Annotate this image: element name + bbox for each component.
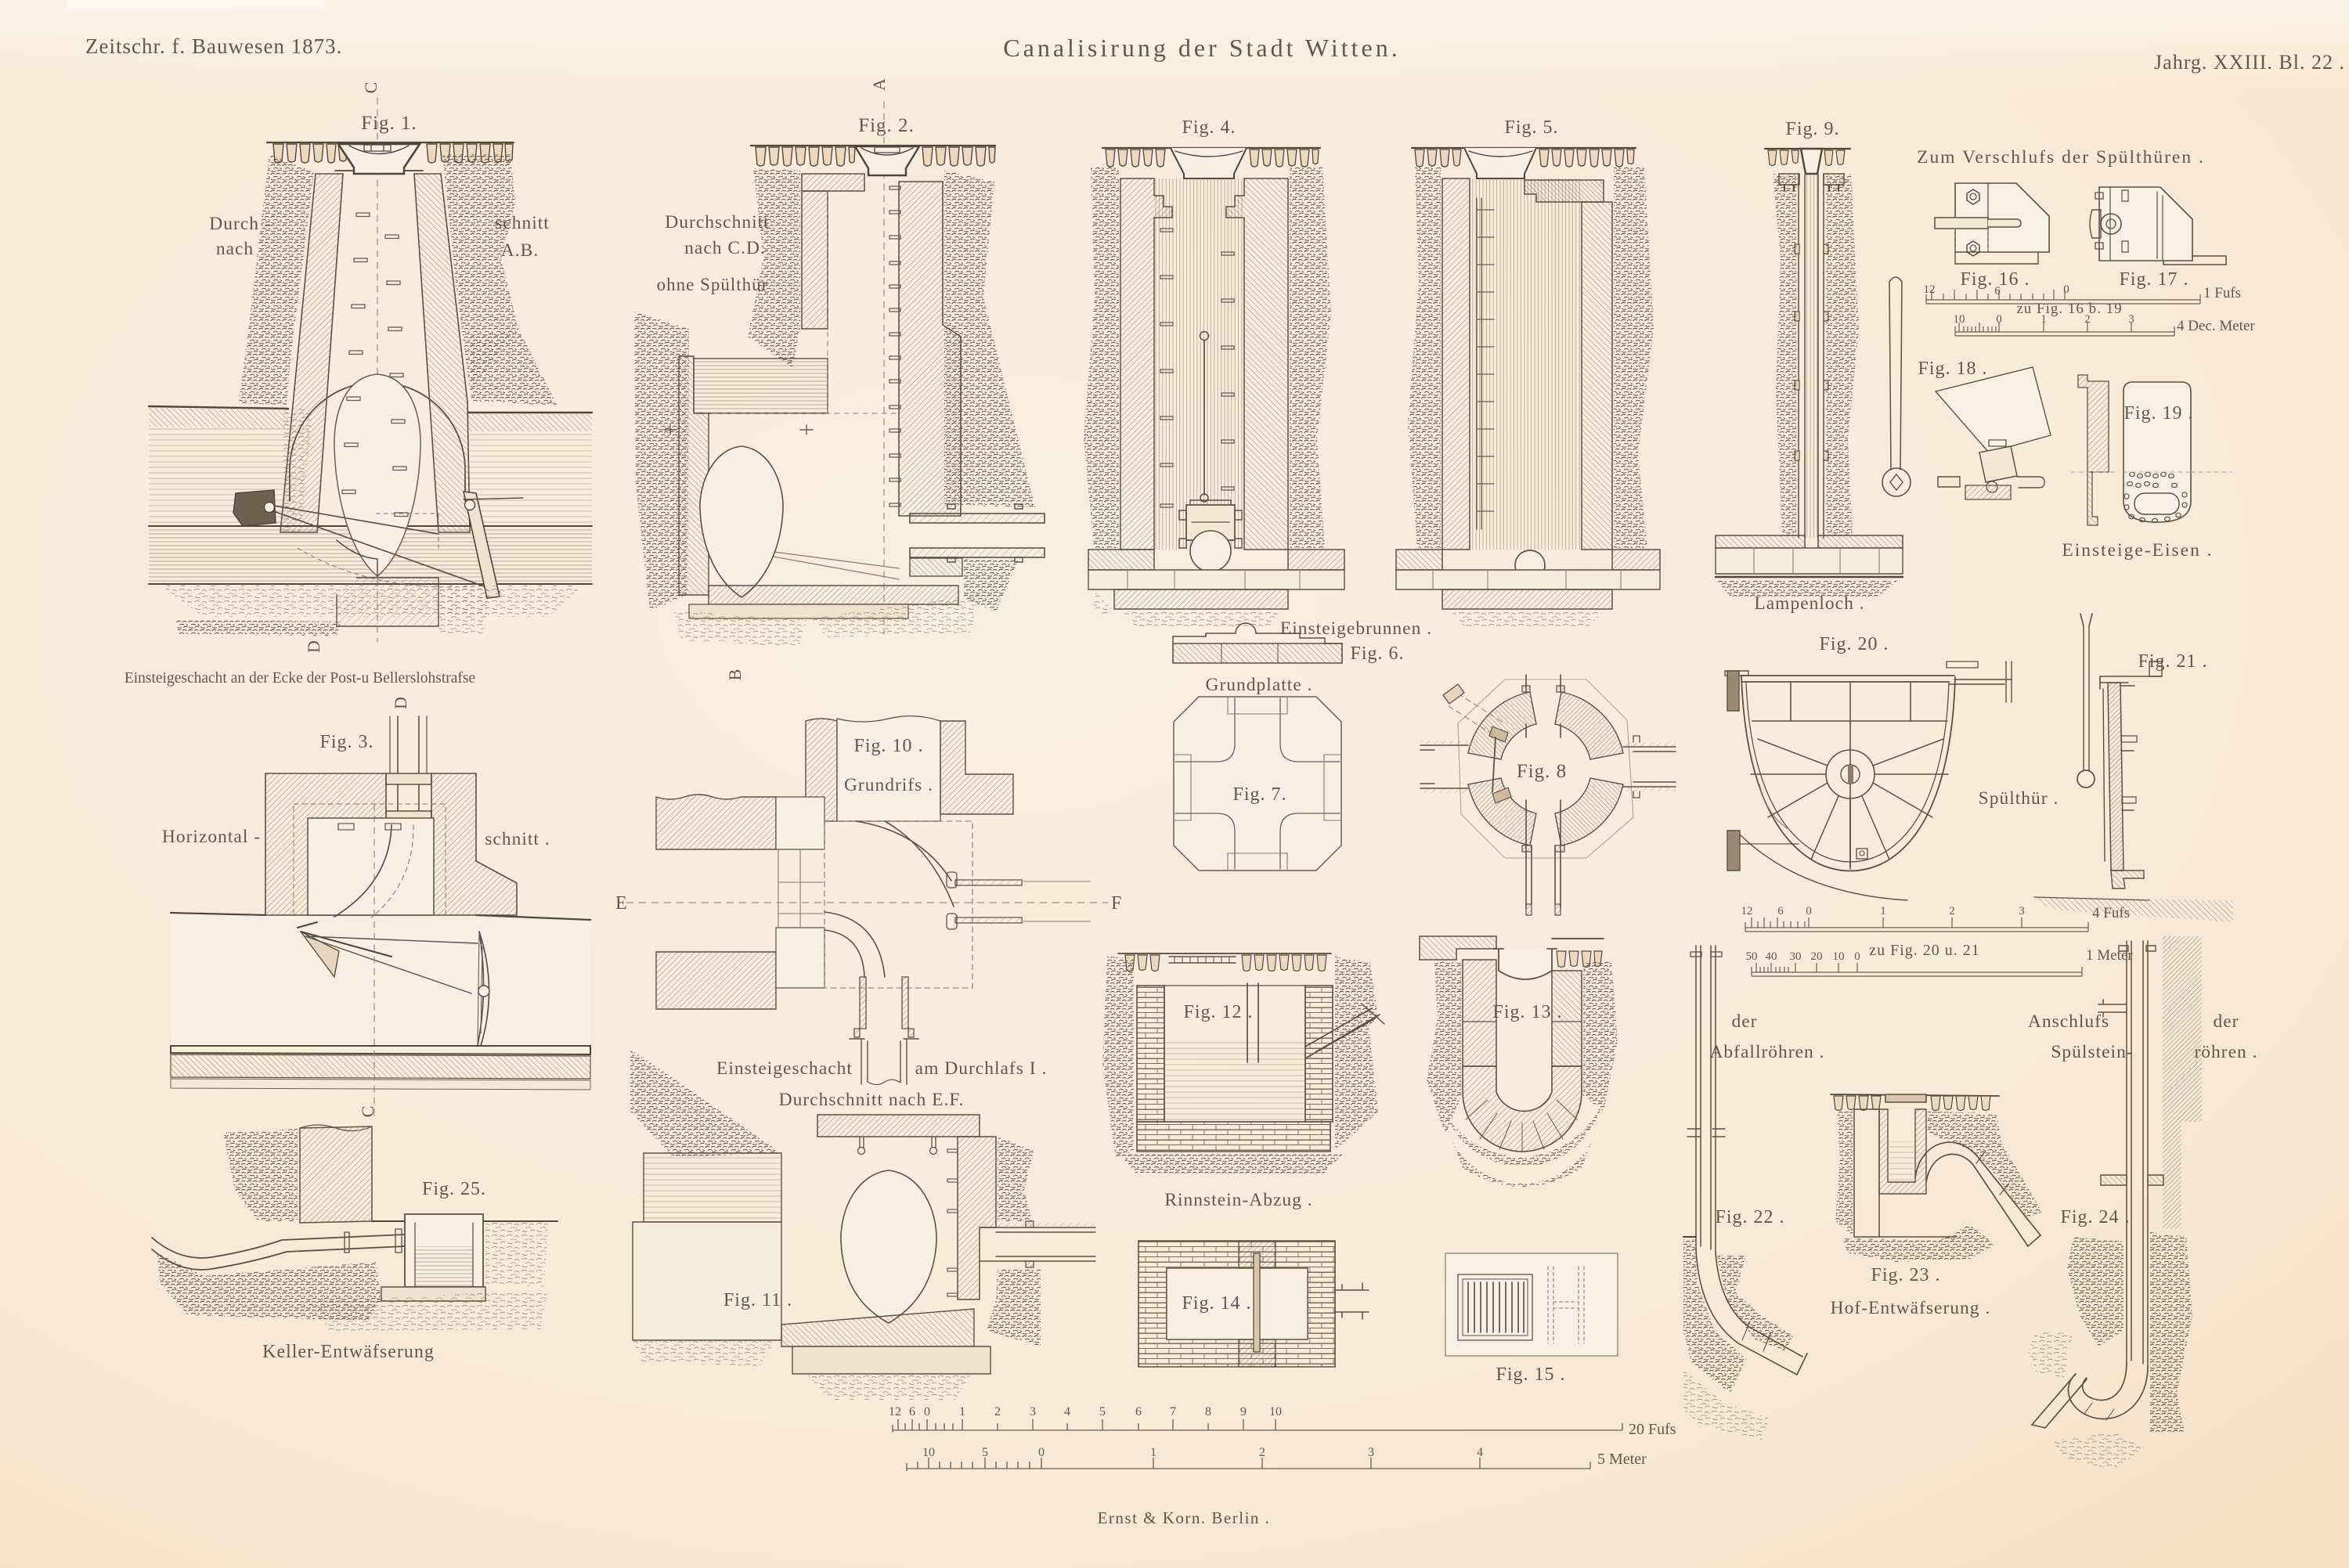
svg-text:3: 3 [1030,1405,1036,1418]
svg-text:Fig. 13 .: Fig. 13 . [1492,1002,1562,1022]
svg-text:A: A [869,78,889,91]
svg-text:2: 2 [994,1405,1001,1418]
svg-text:1 Meter: 1 Meter [2086,947,2133,964]
svg-text:2: 2 [1259,1446,1265,1459]
svg-text:0: 0 [1854,950,1860,963]
svg-text:40: 40 [1766,950,1777,963]
svg-text:F: F [1111,893,1121,914]
svg-text:12: 12 [889,1405,901,1418]
svg-text:4 Fufs: 4 Fufs [2092,905,2130,921]
svg-text:nach C.D.: nach C.D. [684,238,766,258]
svg-text:Fig. 17 .: Fig. 17 . [2119,269,2188,290]
svg-text:Fig. 22 .: Fig. 22 . [1715,1207,1784,1227]
svg-text:Spülstein-: Spülstein- [2051,1042,2133,1062]
svg-text:10: 10 [1833,950,1845,963]
svg-text:30: 30 [1790,950,1802,963]
svg-text:Rinnstein-Abzug .: Rinnstein-Abzug . [1164,1190,1312,1210]
svg-text:Fig. 18 .: Fig. 18 . [1918,359,1987,379]
svg-text:Durchschnitt nach E.F.: Durchschnitt nach E.F. [779,1090,965,1110]
svg-text:Anschlufs: Anschlufs [2028,1011,2109,1032]
svg-text:Fig. 8: Fig. 8 [1517,761,1567,782]
svg-text:1 Fufs: 1 Fufs [2203,285,2241,301]
svg-text:4: 4 [1477,1446,1483,1459]
svg-text:B: B [725,669,745,681]
svg-text:schnitt .: schnitt . [485,829,550,849]
svg-text:0: 0 [1806,905,1812,917]
svg-text:10: 10 [922,1446,935,1459]
svg-text:Ernst & Korn. Berlin .: Ernst & Korn. Berlin . [1098,1509,1271,1527]
svg-text:Fig. 2.: Fig. 2. [858,115,915,136]
svg-text:Horizontal -: Horizontal - [162,827,261,847]
svg-text:4 Dec. Meter: 4 Dec. Meter [2177,318,2255,334]
svg-text:2: 2 [1949,905,1955,917]
svg-text:zu Fig. 16 b. 19: zu Fig. 16 b. 19 [2016,301,2122,317]
svg-text:am Durchlafs I .: am Durchlafs I . [915,1058,1048,1079]
svg-text:Grundplatte .: Grundplatte . [1206,675,1313,695]
svg-text:6: 6 [1135,1405,1142,1418]
svg-text:Zum Verschlufs der Spülthüren: Zum Verschlufs der Spülthüren . [1917,147,2205,168]
svg-text:der: der [1731,1011,1757,1032]
svg-text:Fig. 20 .: Fig. 20 . [1819,634,1889,654]
svg-text:10: 10 [1954,313,1965,326]
svg-text:Spülthür .: Spülthür . [1979,788,2059,809]
svg-text:ohne Spülthür: ohne Spülthür [657,275,769,294]
svg-text:5 Meter: 5 Meter [1597,1451,1647,1468]
svg-text:5: 5 [982,1446,988,1459]
svg-text:1: 1 [959,1405,965,1418]
svg-text:0: 0 [2063,283,2069,296]
svg-text:8: 8 [1205,1405,1211,1418]
svg-text:50: 50 [1746,950,1758,963]
svg-text:Einsteigeschacht an der Ecke d: Einsteigeschacht an der Ecke der Post-u … [124,670,475,687]
svg-text:20: 20 [1811,950,1823,963]
svg-text:zu Fig. 20 u. 21: zu Fig. 20 u. 21 [1869,942,1980,959]
svg-text:Einsteigebrunnen .: Einsteigebrunnen . [1280,618,1432,639]
svg-text:Einsteigeschacht: Einsteigeschacht [716,1058,853,1079]
svg-text:0: 0 [1038,1446,1045,1459]
svg-text:Fig. 12 .: Fig. 12 . [1183,1002,1253,1022]
svg-text:0: 0 [924,1405,930,1418]
svg-text:4: 4 [1064,1405,1070,1418]
svg-text:Fig. 21 .: Fig. 21 . [2138,651,2207,672]
svg-text:nach: nach [216,239,254,259]
svg-text:C: C [361,82,381,94]
svg-text:3: 3 [1368,1446,1374,1459]
svg-text:Hof-Entwäfserung .: Hof-Entwäfserung . [1831,1298,1991,1318]
svg-text:1: 1 [1880,905,1886,917]
svg-text:D: D [304,640,323,653]
svg-text:Fig. 14 .: Fig. 14 . [1182,1293,1251,1314]
svg-text:röhren .: röhren . [2194,1042,2257,1062]
svg-text:Fig. 25.: Fig. 25. [422,1179,486,1199]
svg-text:Fig. 7.: Fig. 7. [1232,784,1286,805]
svg-text:6: 6 [1994,285,2001,297]
svg-text:Lampenloch .: Lampenloch . [1754,593,1864,614]
svg-text:6: 6 [909,1405,915,1418]
svg-text:Einsteige-Eisen .: Einsteige-Eisen . [2062,540,2213,561]
svg-text:Fig. 1.: Fig. 1. [361,113,417,134]
svg-text:Fig. 4.: Fig. 4. [1182,117,1236,138]
svg-text:Abfallröhren .: Abfallröhren . [1709,1042,1824,1062]
svg-text:Grundrifs .: Grundrifs . [844,775,933,795]
svg-text:0: 0 [1996,313,2002,326]
svg-text:9: 9 [1240,1405,1247,1418]
svg-text:Fig. 6.: Fig. 6. [1350,643,1404,664]
svg-text:Fig. 23 .: Fig. 23 . [1871,1265,1940,1285]
svg-text:Fig. 9.: Fig. 9. [1785,119,1839,139]
svg-text:Jahrg. XXIII. Bl. 22 .: Jahrg. XXIII. Bl. 22 . [2154,51,2345,74]
svg-text:10: 10 [1269,1405,1282,1418]
svg-text:C: C [358,1106,377,1118]
svg-text:A.B.: A.B. [501,240,539,261]
svg-text:Durchschnitt: Durchschnitt [665,212,769,232]
svg-text:12: 12 [1741,905,1753,917]
svg-text:Fig. 10 .: Fig. 10 . [853,736,923,756]
svg-text:Fig. 5.: Fig. 5. [1504,117,1558,138]
svg-text:12: 12 [1924,283,1936,296]
svg-text:20 Fufs: 20 Fufs [1629,1421,1676,1438]
svg-text:Fig. 15 .: Fig. 15 . [1496,1364,1565,1385]
svg-text:Fig. 19 .: Fig. 19 . [2123,403,2193,424]
svg-text:Fig. 11 .: Fig. 11 . [723,1290,792,1310]
svg-text:Keller-Entwäfserung: Keller-Entwäfserung [262,1342,435,1362]
svg-text:Canalisirung der Stadt Witten.: Canalisirung der Stadt Witten. [1003,34,1400,62]
svg-text:Zeitschr. f. Bauwesen 1873.: Zeitschr. f. Bauwesen 1873. [85,34,342,58]
svg-text:D: D [391,697,410,709]
svg-text:3: 3 [2128,313,2134,326]
svg-text:Fig. 24 .: Fig. 24 . [2060,1207,2130,1227]
svg-text:6: 6 [1777,905,1784,917]
svg-text:E: E [615,893,627,914]
svg-text:5: 5 [1099,1405,1106,1418]
svg-text:3: 3 [2019,905,2025,917]
svg-text:7: 7 [1170,1405,1176,1418]
svg-text:1: 1 [1150,1446,1156,1459]
svg-text:Fig. 3.: Fig. 3. [319,732,373,752]
svg-text:der: der [2213,1011,2239,1032]
